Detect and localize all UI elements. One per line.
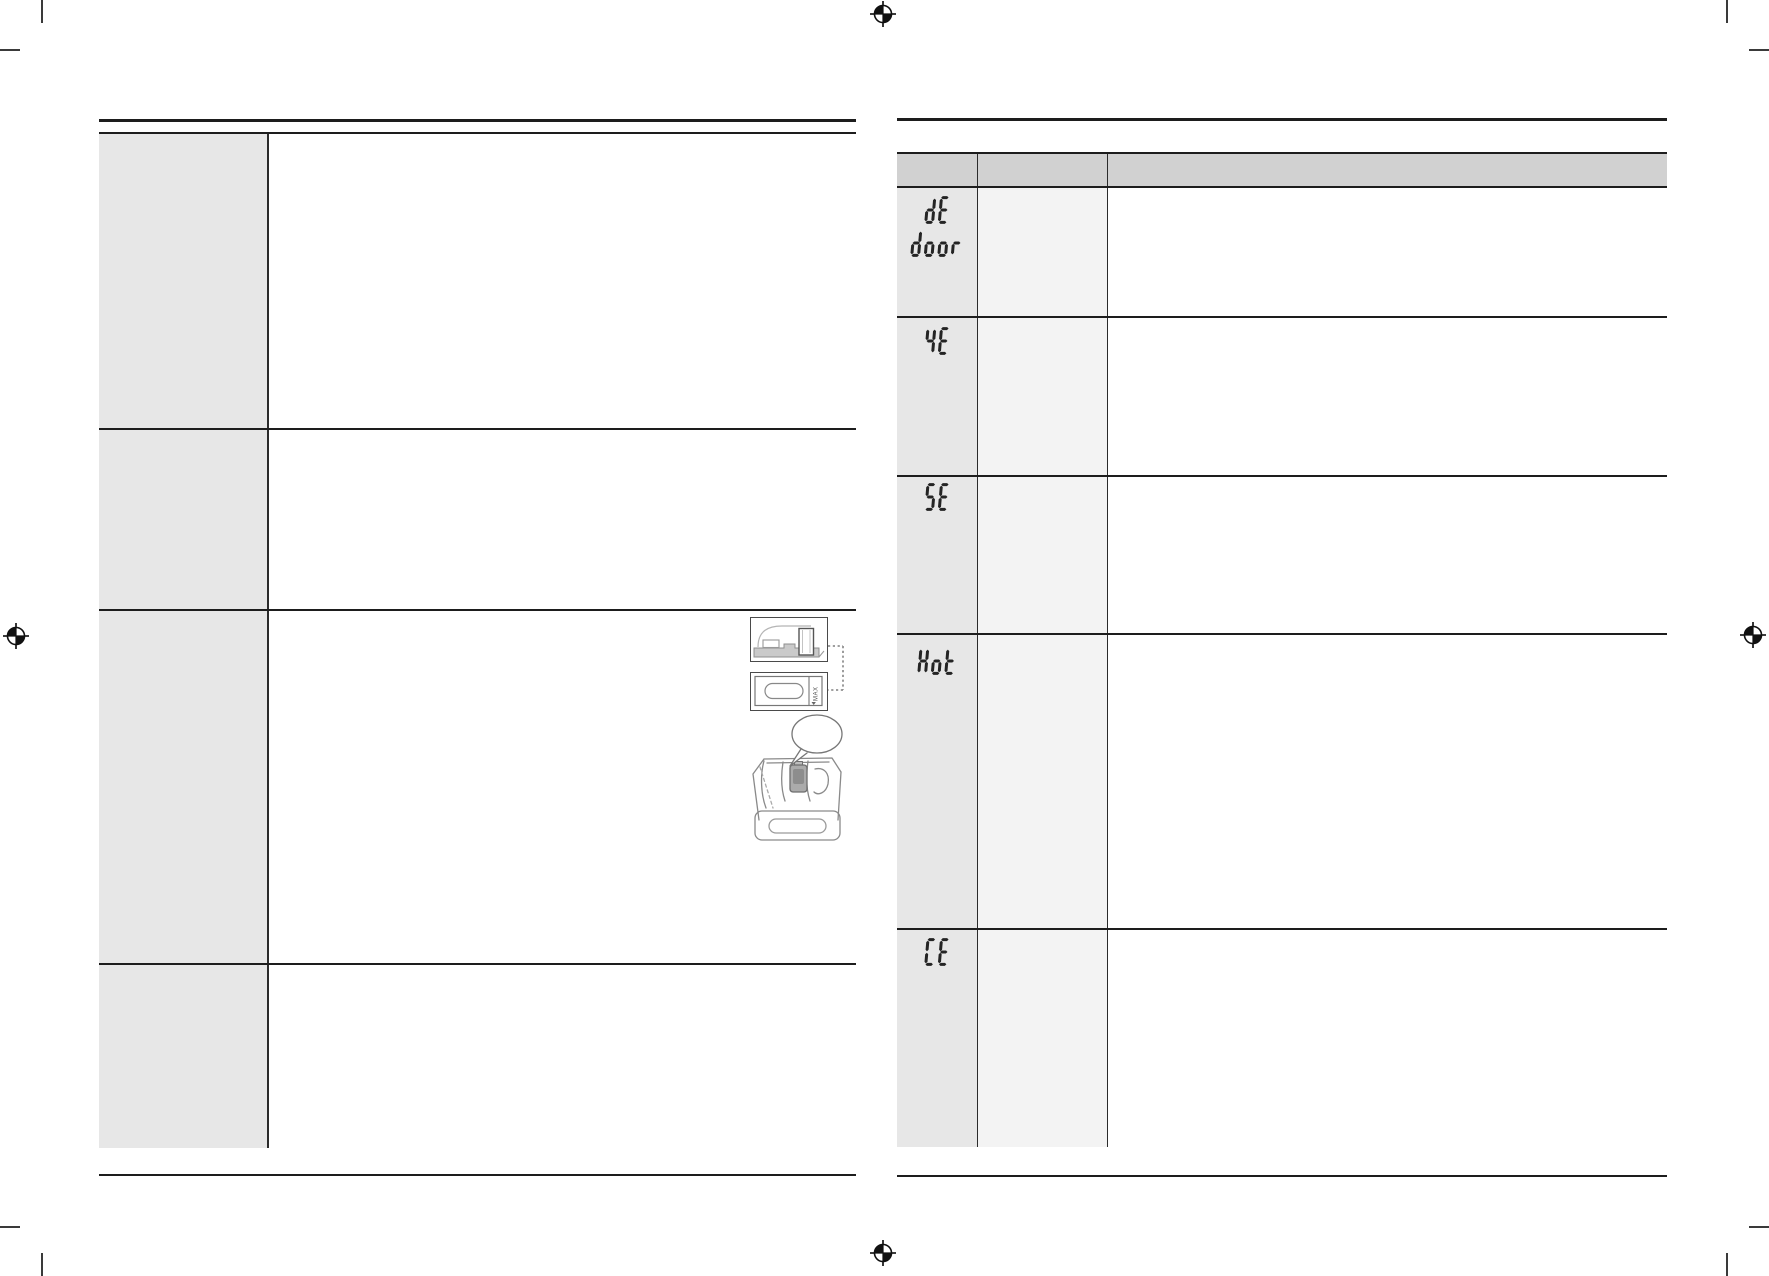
crop-mark (1726, 1253, 1728, 1276)
table-row (897, 188, 1667, 318)
solution-cell (1108, 188, 1667, 316)
row-content-cell (269, 430, 856, 609)
table-row (897, 318, 1667, 477)
error-code-display (924, 196, 948, 224)
crop-mark (0, 49, 20, 51)
error-code-cell (897, 635, 978, 928)
cause-cell (978, 930, 1108, 1147)
header-row (897, 154, 1667, 188)
header-cell-code (897, 154, 978, 186)
solution-cell (1108, 477, 1667, 633)
error-code-display (917, 647, 955, 675)
crop-mark (1749, 49, 1769, 51)
row-label-cell (99, 430, 269, 609)
table-row (897, 635, 1667, 930)
table-row (99, 430, 856, 611)
solution-cell (1108, 635, 1667, 928)
figure-detergent-drawer (745, 713, 845, 843)
speech-bubble (792, 715, 842, 753)
table-row (99, 611, 856, 965)
max-label: MAX (814, 686, 820, 701)
crop-mark (1726, 0, 1728, 23)
row-label-cell (99, 965, 269, 1148)
cause-cell (978, 635, 1108, 928)
cause-cell (978, 188, 1108, 316)
right-page-bottom-rule (897, 1175, 1667, 1177)
right-page-top-rule (897, 118, 1667, 121)
table-row (99, 965, 856, 1148)
table-row (99, 134, 856, 430)
cause-cell (978, 477, 1108, 633)
solution-cell (1108, 318, 1667, 475)
solution-cell (1108, 930, 1667, 1147)
error-code-display (924, 938, 948, 966)
crop-mark (41, 1253, 43, 1276)
crop-mark (41, 0, 43, 23)
registration-mark-icon (868, 1238, 898, 1268)
row-content-cell (269, 134, 856, 428)
figure-detergent-side-view (750, 617, 828, 662)
error-code-display (924, 327, 948, 355)
registration-mark-icon (1, 621, 31, 651)
dotted-connector (826, 634, 852, 698)
arrow-down-icon (812, 702, 816, 705)
table-row (897, 930, 1667, 1147)
crop-mark (0, 1226, 20, 1228)
registration-mark-icon (1738, 620, 1768, 650)
error-code-display (910, 229, 961, 257)
row-content-cell (269, 965, 856, 1148)
error-code-display (924, 483, 948, 511)
left-page-bottom-rule (99, 1174, 856, 1176)
cause-cell (978, 318, 1108, 475)
scanned-manual-page: MAX (0, 0, 1769, 1276)
left-page-top-rule (99, 119, 856, 122)
figure-detergent-top-view: MAX (750, 672, 828, 711)
left-troubleshooting-table (99, 132, 856, 1146)
row-label-cell (99, 134, 269, 428)
crop-mark (1749, 1226, 1769, 1228)
header-cell-solution (1108, 154, 1667, 186)
row-label-cell (99, 611, 269, 963)
siphon-cap (799, 629, 814, 656)
table-row (897, 477, 1667, 635)
information-code-table (897, 152, 1667, 1145)
registration-mark-icon (868, 0, 898, 29)
header-cell-cause (978, 154, 1108, 186)
